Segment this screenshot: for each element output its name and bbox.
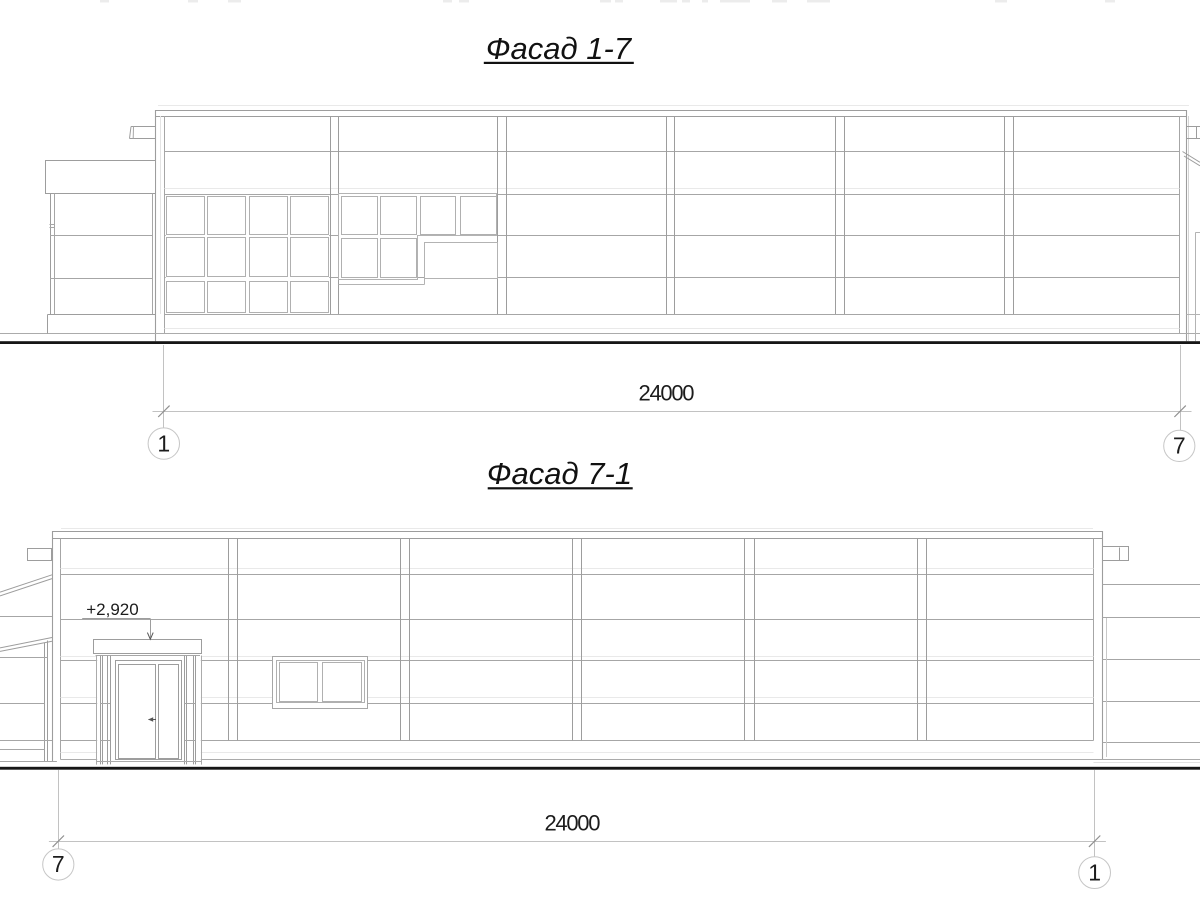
svg-text:1: 1: [1088, 859, 1101, 885]
svg-text:7: 7: [1173, 433, 1186, 459]
svg-text:+2,920: +2,920: [86, 600, 138, 619]
svg-text:24000: 24000: [544, 810, 600, 835]
svg-text:7: 7: [52, 851, 65, 877]
svg-text:Фасад 7-1: Фасад 7-1: [487, 456, 632, 491]
svg-text:Фасад 1-7: Фасад 1-7: [486, 31, 633, 66]
svg-text:1: 1: [157, 430, 170, 456]
svg-text:24000: 24000: [639, 381, 695, 406]
